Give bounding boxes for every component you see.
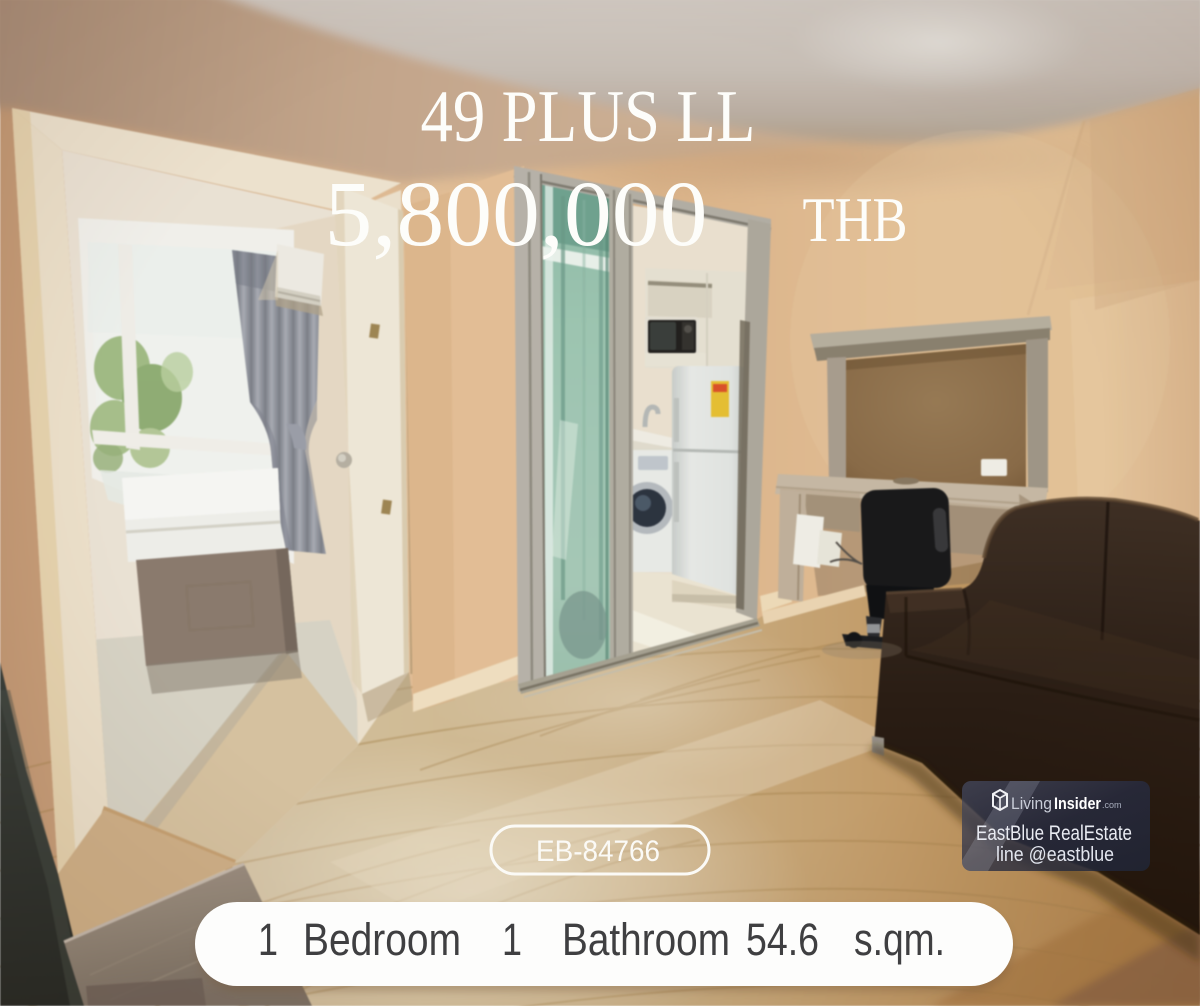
svg-text:1: 1 bbox=[502, 914, 522, 965]
svg-text:EastBlue RealEstate: EastBlue RealEstate bbox=[976, 822, 1132, 845]
svg-text:1: 1 bbox=[258, 914, 278, 965]
svg-text:54.6: 54.6 bbox=[746, 914, 819, 965]
svg-text:49 PLUS LL: 49 PLUS LL bbox=[421, 76, 756, 158]
svg-text:5,800,000: 5,800,000 bbox=[325, 163, 708, 266]
svg-text:EB-84766: EB-84766 bbox=[536, 835, 660, 868]
svg-text:line @eastblue: line @eastblue bbox=[996, 844, 1114, 866]
svg-text:.com: .com bbox=[1102, 800, 1122, 810]
svg-text:s.qm.: s.qm. bbox=[854, 914, 945, 965]
svg-text:THB: THB bbox=[803, 185, 908, 255]
svg-text:Bedroom: Bedroom bbox=[303, 914, 461, 965]
svg-text:Bathroom: Bathroom bbox=[562, 914, 730, 965]
svg-text:Insider: Insider bbox=[1054, 794, 1101, 813]
svg-text:Living: Living bbox=[1011, 794, 1052, 813]
